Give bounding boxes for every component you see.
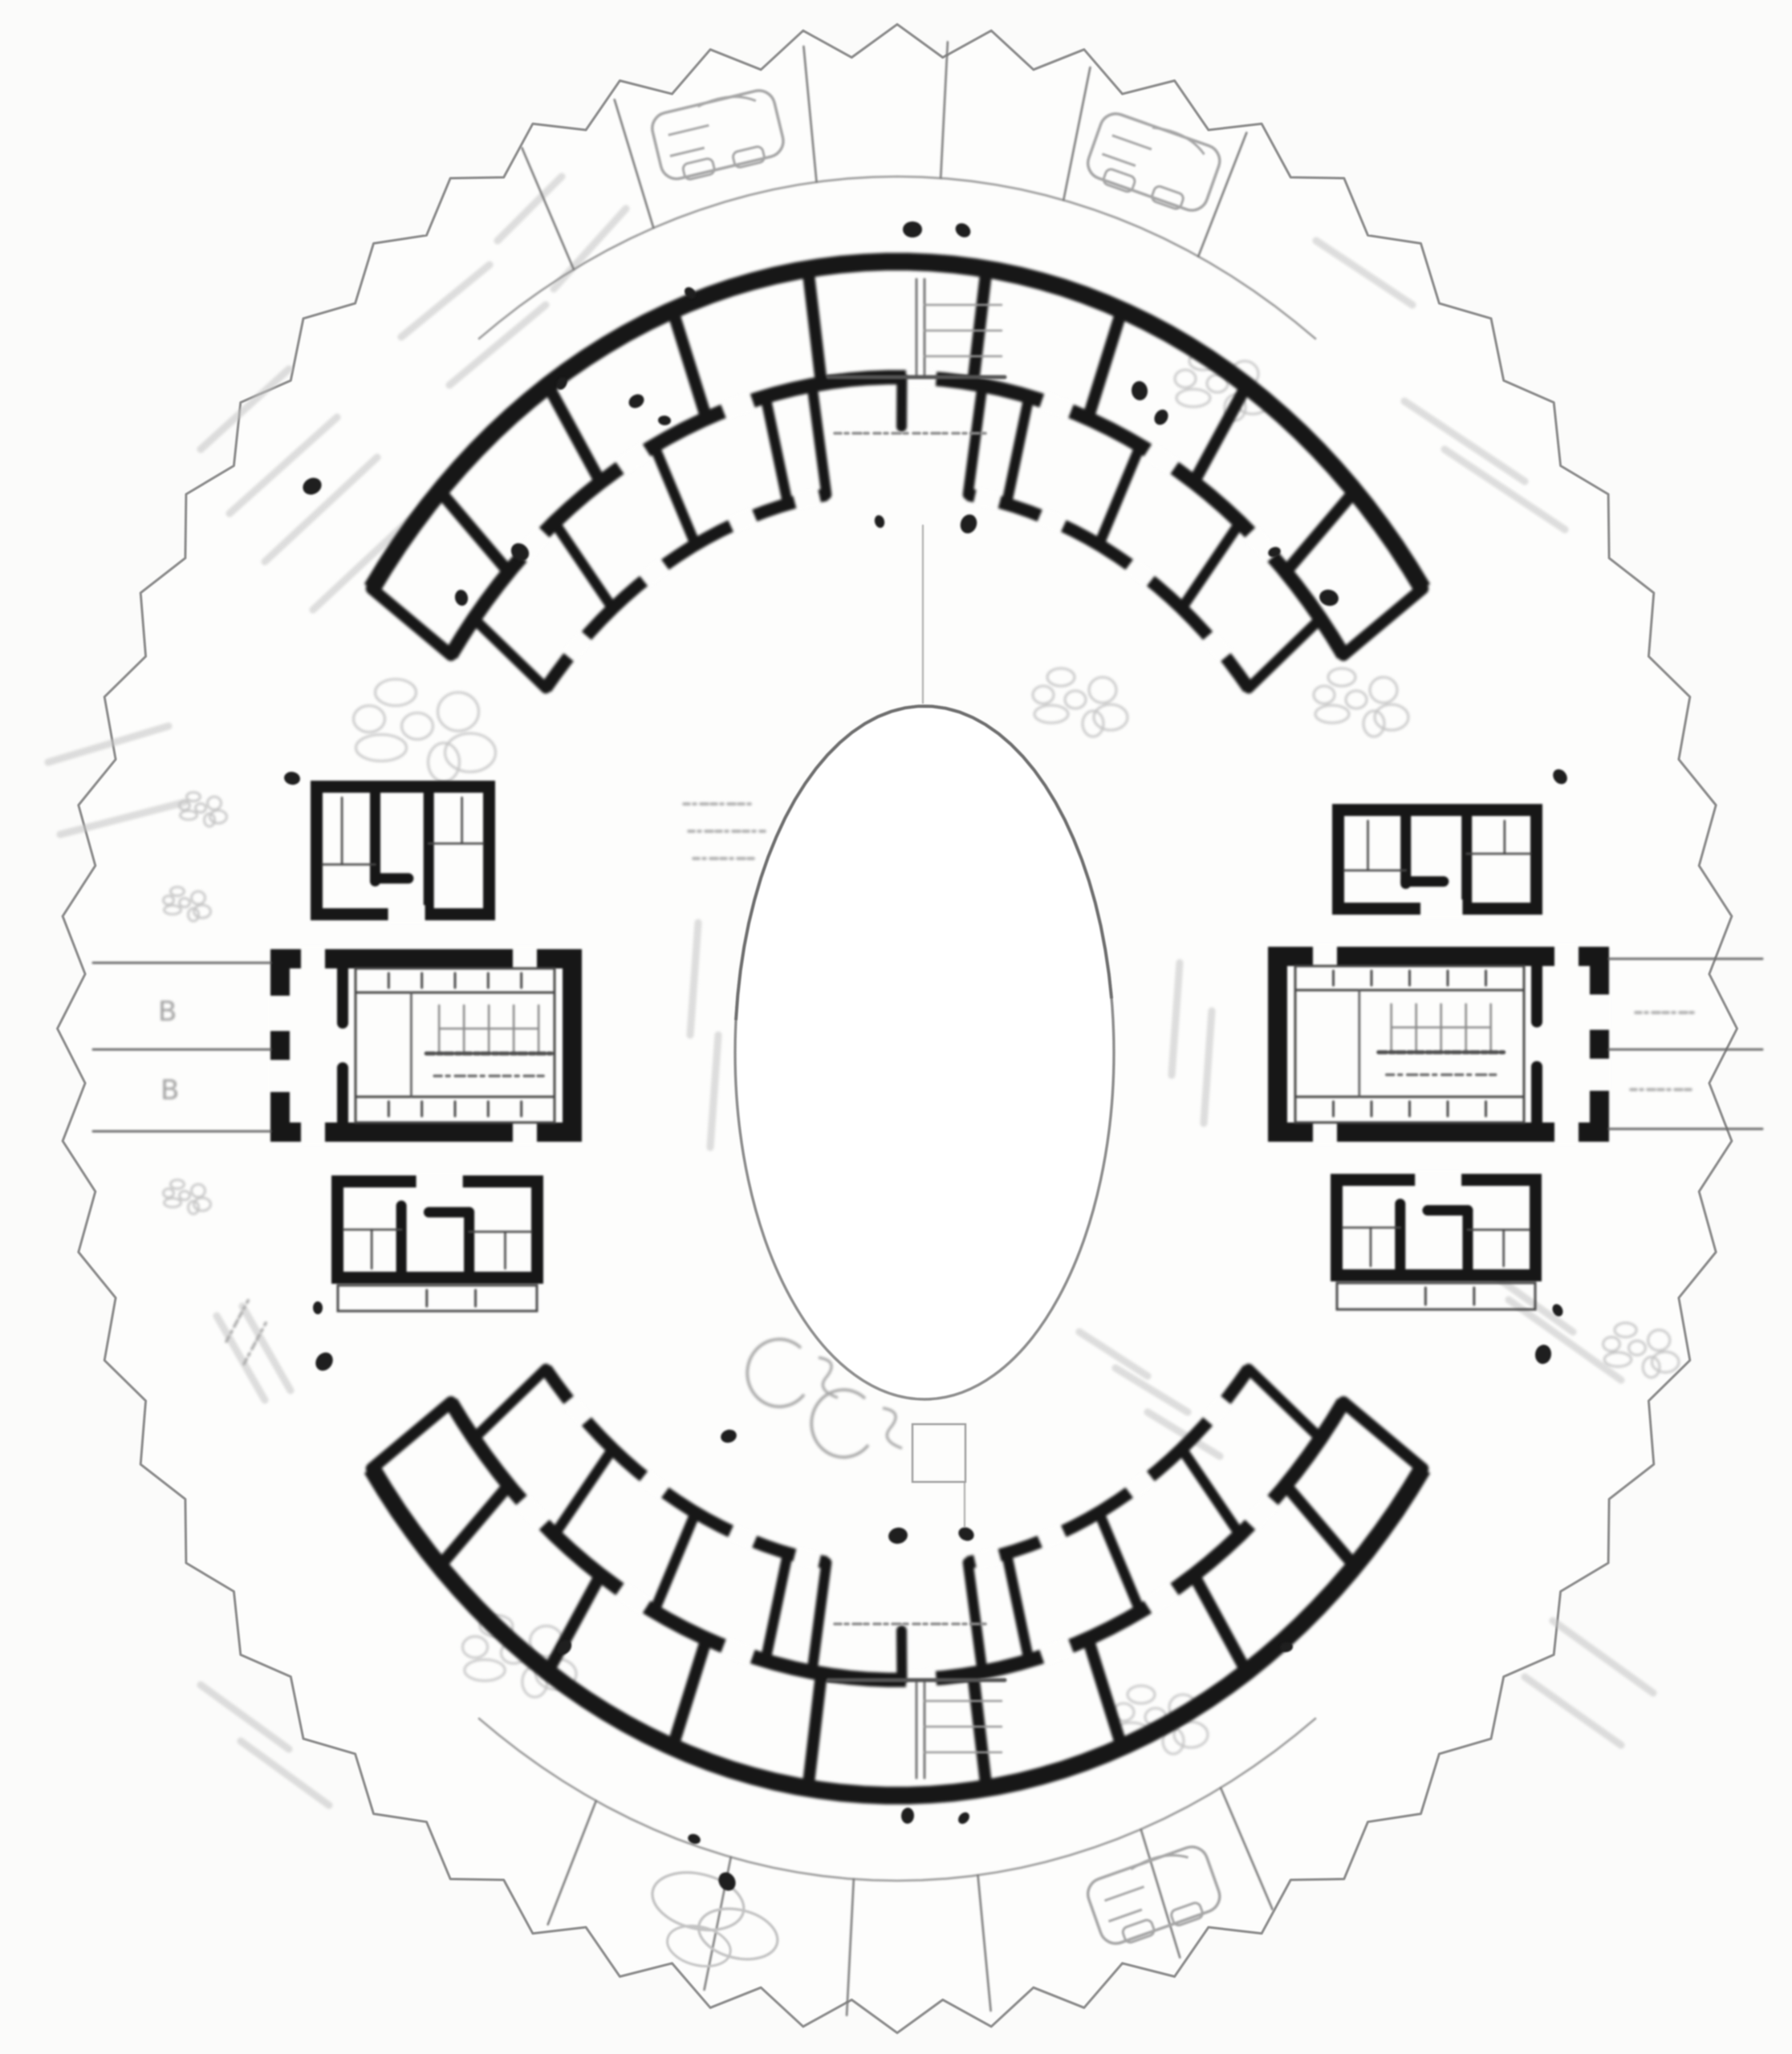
pencil-letter: B	[161, 1074, 179, 1106]
stair-core-module	[1278, 944, 1611, 1145]
module-walls	[280, 959, 572, 1132]
door-gap	[1040, 1532, 1064, 1542]
apartment-module	[1339, 810, 1537, 919]
door-gap	[1420, 899, 1462, 918]
door-gap	[301, 1119, 325, 1145]
plan-dot	[903, 221, 922, 237]
door-gap	[1042, 400, 1071, 411]
door-gap	[1585, 995, 1611, 1030]
door-gap	[301, 946, 325, 972]
door-gap	[1040, 516, 1064, 526]
door-gap	[724, 1646, 753, 1657]
door-gap	[731, 1532, 755, 1542]
door-gap	[267, 996, 293, 1031]
door-gap	[975, 496, 1000, 502]
door-gap	[388, 905, 425, 923]
door-gap	[1415, 1171, 1461, 1189]
door-gap	[267, 1060, 293, 1092]
door-gap	[1585, 1059, 1611, 1091]
door-gap	[794, 496, 819, 502]
door-gap	[1554, 944, 1579, 969]
door-gap	[1554, 1119, 1579, 1145]
stair-core-module	[267, 946, 572, 1145]
floor-plan-page: BB	[0, 0, 1792, 2054]
door-gap	[794, 1555, 819, 1561]
courtyard-oval	[735, 706, 1114, 1399]
floor-plan-svg: BB	[0, 0, 1792, 2054]
door-gap	[724, 400, 753, 411]
pencil-letter: B	[158, 996, 177, 1028]
door-gap	[731, 516, 755, 526]
door-gap	[1042, 1646, 1071, 1657]
door-gap	[975, 1555, 1000, 1561]
door-gap	[417, 1172, 463, 1191]
module-walls	[1278, 956, 1599, 1132]
apartment-module	[317, 787, 490, 924]
